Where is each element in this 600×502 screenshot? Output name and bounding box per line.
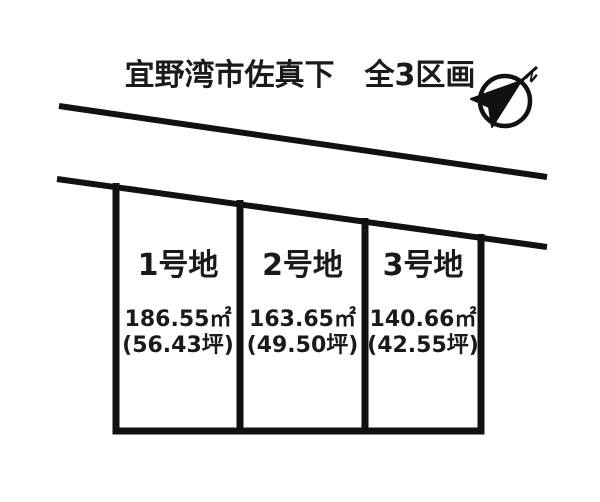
- road-edge-upper: [59, 106, 547, 177]
- road-edge-lower: [57, 179, 547, 247]
- land-plot-diagram: 宜野湾市佐真下 全3区画 N 1号地 186.55㎡ (56.43坪) 2号地 …: [0, 0, 600, 502]
- plot-name: 1号地: [116, 251, 240, 281]
- plot-3-label: 3号地 140.66㎡ (42.55坪): [365, 251, 481, 359]
- plot-name: 2号地: [240, 251, 365, 281]
- plot-area-tsubo: (49.50坪): [240, 333, 365, 359]
- plot-area-tsubo: (56.43坪): [116, 333, 240, 359]
- plot-1-label: 1号地 186.55㎡ (56.43坪): [116, 251, 240, 359]
- compass-icon: N: [471, 67, 540, 127]
- plot-area-tsubo: (42.55坪): [365, 333, 481, 359]
- plot-area-m2: 186.55㎡: [116, 307, 240, 333]
- plot-area-m2: 163.65㎡: [240, 307, 365, 333]
- plot-name: 3号地: [365, 251, 481, 281]
- plot-2-label: 2号地 163.65㎡ (49.50坪): [240, 251, 365, 359]
- plot-area-m2: 140.66㎡: [365, 307, 481, 333]
